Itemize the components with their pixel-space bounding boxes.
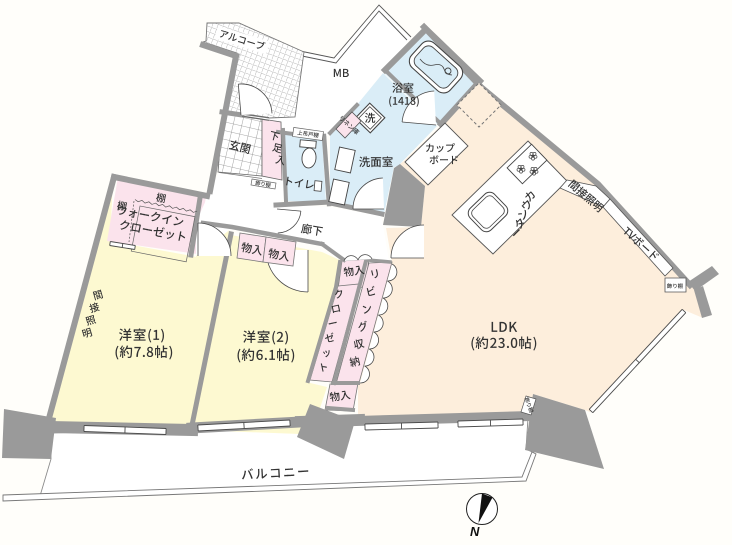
svg-text:N: N: [470, 524, 480, 539]
